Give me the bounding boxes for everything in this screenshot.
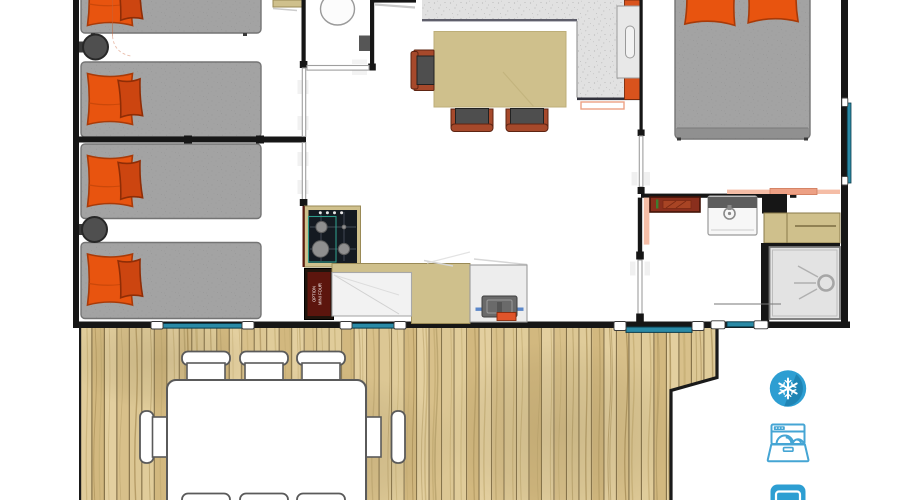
svg-text:MINI FOUR: MINI FOUR [318,283,323,305]
svg-text:OPTION: OPTION [312,286,317,302]
